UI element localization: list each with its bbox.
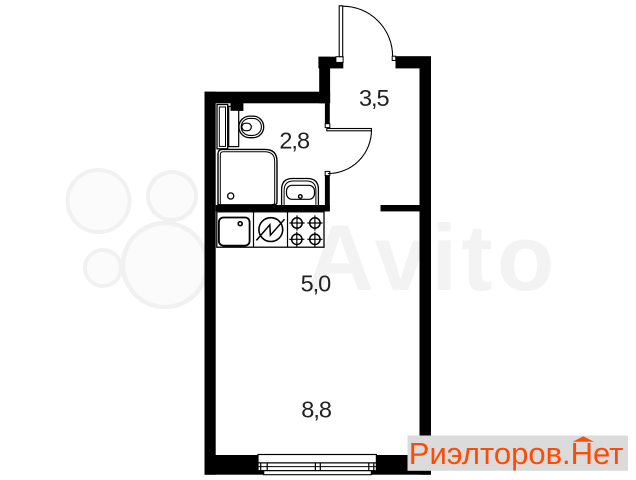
svg-text:2,8: 2,8 <box>279 128 310 154</box>
svg-text:Avito: Avito <box>306 205 559 310</box>
svg-text:8,8: 8,8 <box>301 397 332 423</box>
svg-text:3,5: 3,5 <box>359 85 390 111</box>
svg-text:5,0: 5,0 <box>301 270 332 296</box>
